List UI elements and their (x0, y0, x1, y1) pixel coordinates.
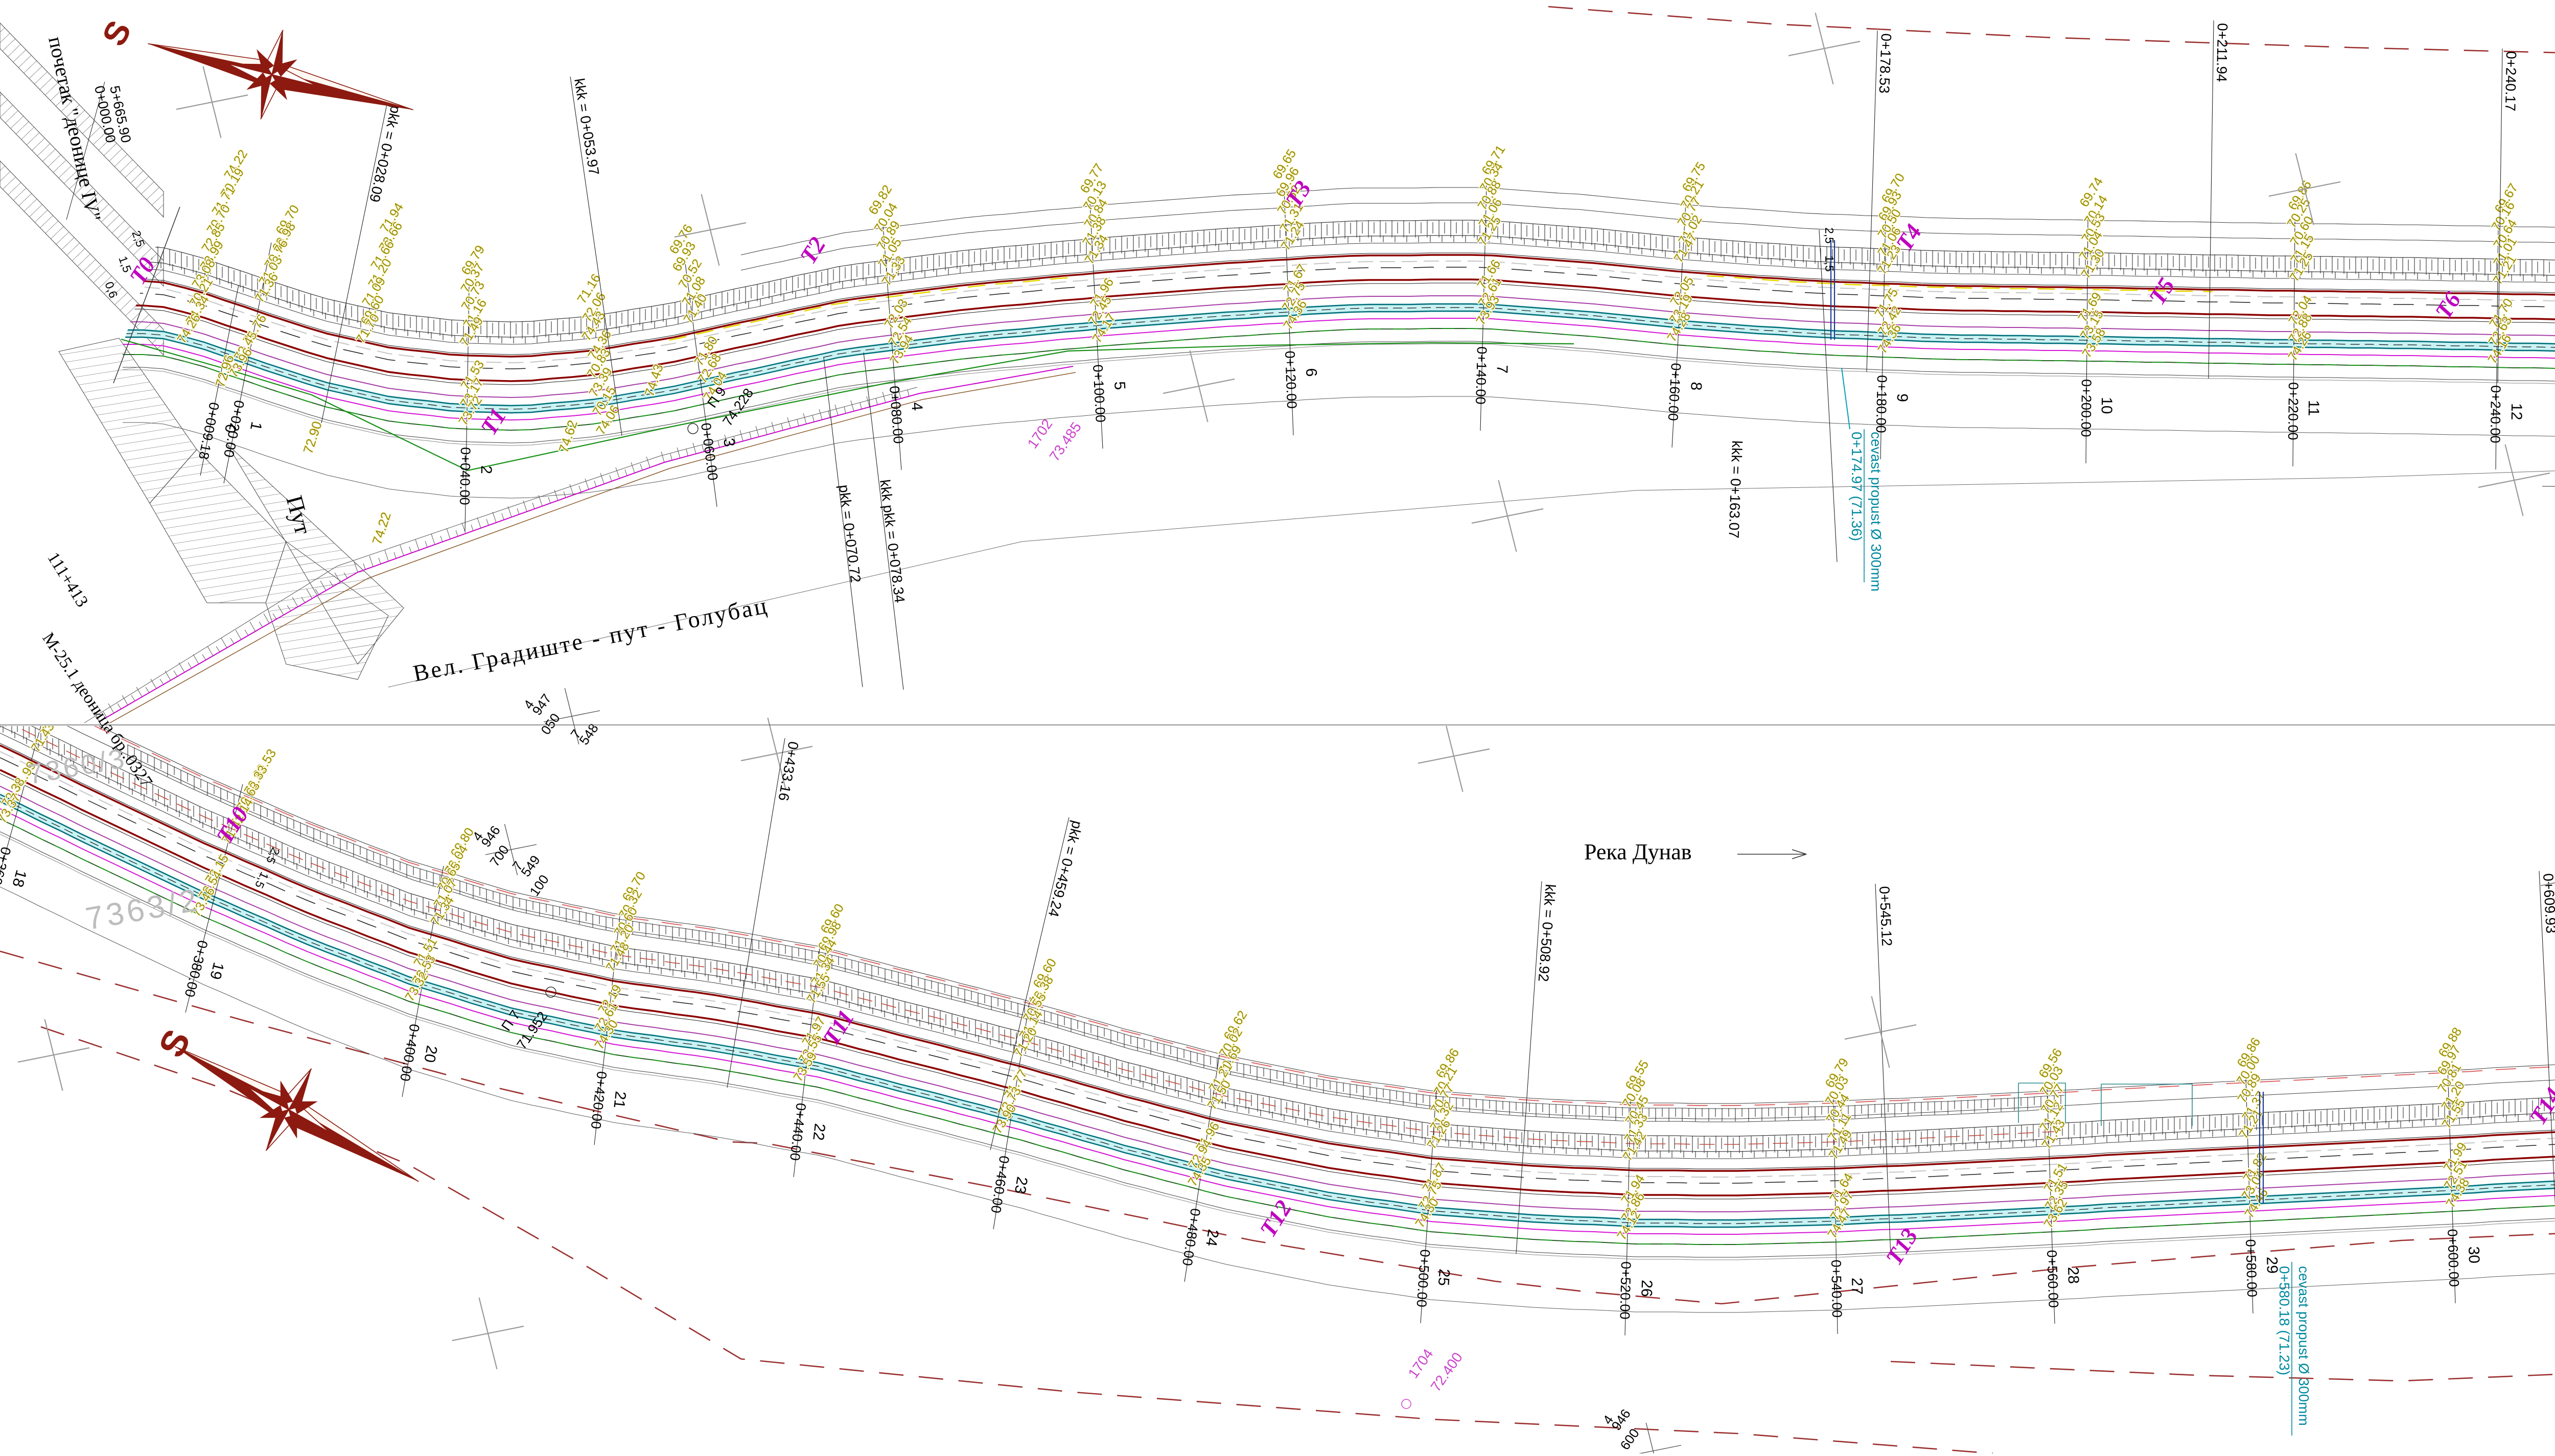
svg-text:26: 26 (1638, 1280, 1655, 1297)
svg-text:2,5: 2,5 (1823, 227, 1836, 244)
svg-text:0+100.00: 0+100.00 (1090, 364, 1108, 423)
svg-text:2: 2 (478, 465, 495, 474)
svg-text:27: 27 (1848, 1278, 1866, 1295)
svg-text:9: 9 (1894, 393, 1911, 402)
svg-text:0+545.12: 0+545.12 (1876, 886, 1895, 947)
svg-text:0+178.53: 0+178.53 (1876, 33, 1894, 94)
svg-text:0+120.00: 0+120.00 (1282, 350, 1299, 409)
svg-text:0+240.17: 0+240.17 (2502, 51, 2519, 111)
svg-text:5: 5 (1111, 381, 1128, 390)
svg-text:0+200.00: 0+200.00 (2078, 379, 2094, 437)
svg-text:12: 12 (2508, 403, 2525, 420)
svg-text:25: 25 (1435, 1269, 1453, 1286)
svg-text:0+600.00: 0+600.00 (2445, 1229, 2462, 1287)
svg-text:0+220.00: 0+220.00 (2285, 382, 2301, 440)
svg-text:1,5: 1,5 (1823, 255, 1836, 272)
svg-text:21: 21 (610, 1090, 629, 1109)
svg-text:0+160.00: 0+160.00 (1665, 363, 1684, 421)
svg-text:6: 6 (1303, 368, 1320, 377)
svg-text:0+520.00: 0+520.00 (1617, 1261, 1634, 1320)
svg-text:28: 28 (2064, 1266, 2082, 1284)
svg-text:0+240.00: 0+240.00 (2488, 385, 2503, 443)
svg-text:0+211.94: 0+211.94 (2214, 23, 2231, 82)
svg-text:10: 10 (2098, 397, 2115, 414)
svg-text:24: 24 (1202, 1228, 1222, 1248)
svg-text:Река Дунав: Река Дунав (1584, 839, 1692, 864)
svg-text:7: 7 (1494, 365, 1511, 374)
svg-text:4: 4 (908, 402, 925, 411)
svg-text:30: 30 (2465, 1246, 2482, 1263)
svg-text:8: 8 (1687, 382, 1705, 391)
svg-text:0+540.00: 0+540.00 (1828, 1260, 1845, 1318)
svg-text:0+560.00: 0+560.00 (2044, 1250, 2061, 1308)
svg-text:cevast propust Ø 300mm: cevast propust Ø 300mm (2296, 1266, 2312, 1426)
svg-text:0+174.97 (71.36): 0+174.97 (71.36) (1849, 432, 1865, 541)
svg-text:0+040.00: 0+040.00 (457, 447, 473, 505)
svg-text:0+180.00: 0+180.00 (1873, 375, 1890, 433)
svg-text:20: 20 (421, 1044, 440, 1064)
svg-text:22: 22 (809, 1122, 828, 1141)
svg-text:23: 23 (1011, 1176, 1031, 1195)
svg-text:11: 11 (2305, 400, 2322, 416)
svg-text:0+140.00: 0+140.00 (1473, 346, 1490, 405)
svg-text:0+580.00: 0+580.00 (2243, 1239, 2260, 1297)
svg-text:0+580.18 (71.23): 0+580.18 (71.23) (2277, 1266, 2292, 1375)
svg-text:cevast propust Ø 300mm: cevast propust Ø 300mm (1868, 432, 1884, 592)
